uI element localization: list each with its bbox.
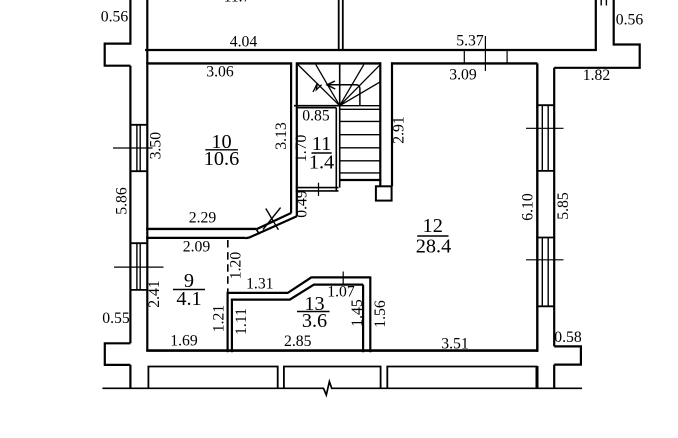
svg-text:3.50: 3.50 xyxy=(148,132,165,160)
svg-text:1.21: 1.21 xyxy=(211,305,228,332)
svg-text:0.56: 0.56 xyxy=(616,12,644,29)
svg-text:3.06: 3.06 xyxy=(206,64,234,81)
svg-text:6.10: 6.10 xyxy=(520,193,537,221)
svg-text:0.58: 0.58 xyxy=(554,329,582,346)
svg-text:2.41: 2.41 xyxy=(146,280,163,307)
svg-text:4.1: 4.1 xyxy=(176,288,201,310)
svg-text:1.56: 1.56 xyxy=(372,300,389,328)
svg-text:5.85: 5.85 xyxy=(555,192,572,220)
svg-text:1.82: 1.82 xyxy=(583,67,610,84)
svg-text:3.6: 3.6 xyxy=(302,310,327,332)
svg-text:1.4: 1.4 xyxy=(309,152,334,174)
svg-text:0.55: 0.55 xyxy=(102,310,130,327)
svg-text:2.85: 2.85 xyxy=(284,333,312,350)
svg-text:1.70: 1.70 xyxy=(293,135,310,163)
svg-text:2.09: 2.09 xyxy=(183,239,211,256)
svg-text:1.45: 1.45 xyxy=(349,299,366,327)
svg-text:5.37: 5.37 xyxy=(456,33,484,50)
svg-text:3.09: 3.09 xyxy=(449,67,477,84)
svg-text:0.56: 0.56 xyxy=(101,9,129,26)
svg-text:1.11: 1.11 xyxy=(233,308,250,335)
svg-text:2.91: 2.91 xyxy=(391,116,408,143)
svg-text:28.4: 28.4 xyxy=(416,236,452,258)
svg-text:0.85: 0.85 xyxy=(302,108,330,125)
svg-text:1.20: 1.20 xyxy=(228,252,245,280)
svg-text:10.6: 10.6 xyxy=(204,148,240,170)
svg-text:5.86: 5.86 xyxy=(114,187,131,215)
svg-text:12: 12 xyxy=(423,215,443,237)
svg-text:1.69: 1.69 xyxy=(170,333,198,350)
svg-text:3.51: 3.51 xyxy=(441,336,468,353)
svg-text:11.7: 11.7 xyxy=(224,0,251,6)
svg-text:3.13: 3.13 xyxy=(273,122,290,150)
svg-text:1.07: 1.07 xyxy=(327,284,355,301)
svg-text:2.29: 2.29 xyxy=(189,210,217,227)
svg-text:4.04: 4.04 xyxy=(230,34,258,51)
svg-text:1.31: 1.31 xyxy=(246,276,273,293)
svg-text:0.49: 0.49 xyxy=(294,190,311,218)
